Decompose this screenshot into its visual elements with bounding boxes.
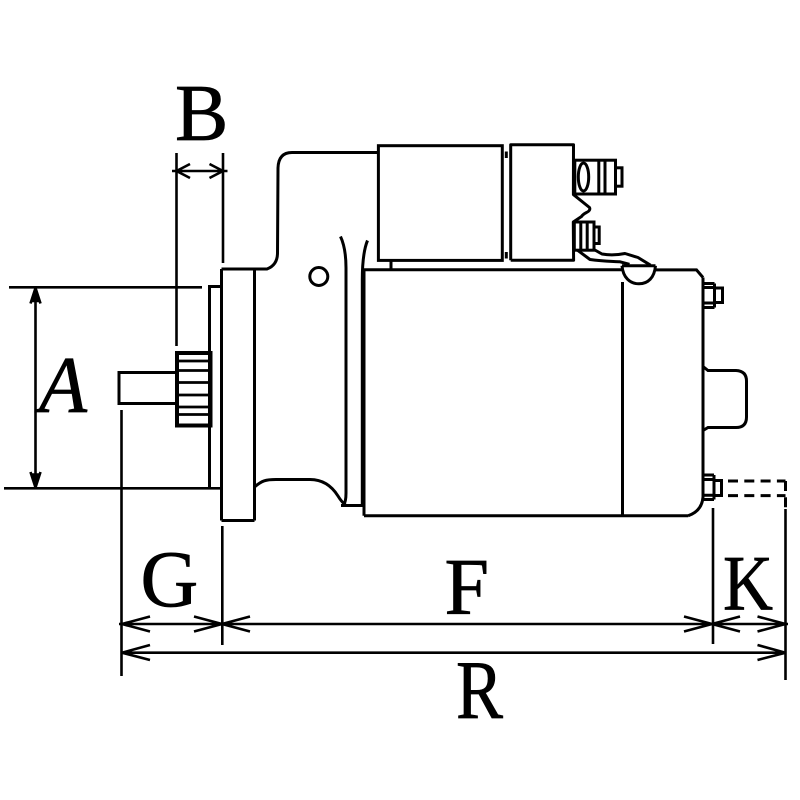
svg-text:G: G — [141, 536, 199, 624]
svg-text:B: B — [175, 70, 228, 158]
svg-text:K: K — [723, 540, 773, 627]
svg-text:F: F — [445, 544, 490, 632]
svg-text:A: A — [34, 342, 88, 430]
svg-text:R: R — [456, 644, 503, 737]
